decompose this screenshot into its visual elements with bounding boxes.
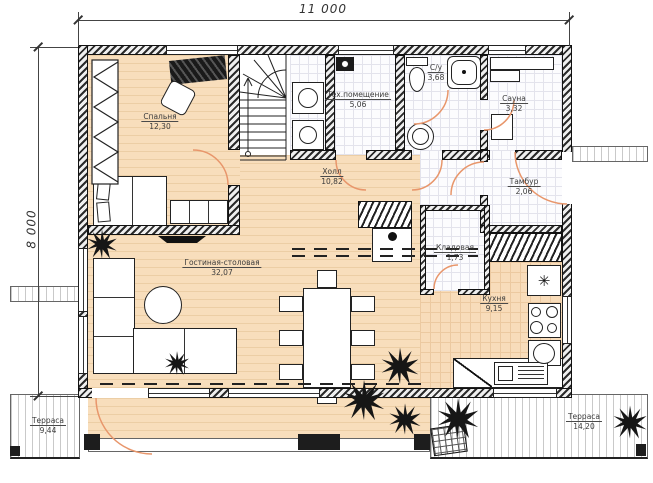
porch-post (298, 434, 340, 450)
wall-bedroom-bottom (88, 225, 240, 235)
kitchen-sink-bowl-icon (533, 343, 555, 364)
sofa-arm-vertical (93, 258, 135, 374)
oven-door-icon (498, 366, 513, 381)
eaves-right (572, 146, 648, 162)
hall-wardrobe (358, 201, 412, 228)
dining-chair (351, 330, 375, 346)
window-bottom-dining (228, 388, 320, 398)
wall-bath-sauna-a (480, 55, 488, 100)
terrace-post (636, 444, 646, 456)
window-top-bedroom (166, 45, 238, 55)
tambur-wardrobe (488, 233, 562, 262)
door-opening-porch (92, 388, 148, 398)
wall-sauna-bottom (515, 150, 562, 160)
oven-vents-icon (518, 366, 544, 381)
porch-step (88, 438, 430, 452)
wall-storage-top (420, 205, 490, 211)
dining-chair (279, 330, 303, 346)
corner-cabinet-diagonal (454, 359, 492, 387)
fridge-snowflake-icon: ✳ (538, 272, 551, 290)
window-top-tech (338, 45, 394, 55)
wall-bath-sauna-b (480, 130, 488, 150)
tech-sink-bowl-icon (341, 60, 349, 68)
bath-sink-bowl-icon (412, 128, 429, 145)
wall-tambur-left-a (480, 150, 488, 162)
room-label-terrace-right: Терраса 14,20 (566, 412, 602, 432)
dining-table (303, 288, 351, 388)
window-left-living-1 (78, 248, 88, 312)
dimension-width-label: 11 000 (299, 2, 347, 16)
wall-storage-bottom-a (420, 289, 434, 295)
coffee-table (144, 286, 182, 324)
stove-burner-icon (546, 306, 558, 318)
boiler-dial-icon (298, 88, 318, 108)
wall-tambur-bottom (480, 225, 562, 233)
sauna-stool (491, 114, 513, 140)
dining-chair (279, 364, 303, 380)
room-label-techroom: Тех.помещение 5,06 (325, 90, 391, 110)
window-left-living-2 (78, 316, 88, 374)
wall-storage-right (484, 205, 490, 295)
stove-burner-icon (547, 323, 557, 333)
room-label-kitchen: Кухня 9,15 (480, 294, 508, 314)
bed-pillow (96, 179, 111, 200)
dresser (170, 200, 228, 224)
wall-bedroom-right-a (228, 55, 240, 150)
window-bottom-kitchen (493, 388, 557, 398)
fridge: ✳ (527, 265, 561, 296)
dining-chair (279, 296, 303, 312)
bed-pillow (96, 201, 111, 222)
dining-chair (351, 364, 375, 380)
porch-floor (88, 398, 430, 438)
stove-burner-icon (531, 307, 541, 317)
sauna-bench (490, 57, 554, 70)
door-opening-entrance (562, 152, 572, 204)
wall-hall-top-b (366, 150, 412, 160)
cabinet-knob-icon (388, 232, 397, 241)
terrace-post (10, 446, 20, 456)
basket (430, 424, 468, 456)
heater-dial-icon (299, 126, 317, 144)
sofa-arm-horizontal (133, 328, 237, 374)
dimension-height-label: 8 000 (25, 209, 39, 248)
shower-drain-icon (462, 70, 466, 74)
room-label-storage: Кладовая 1,73 (434, 243, 476, 263)
eaves-left (10, 286, 80, 302)
window-bottom-living (148, 388, 210, 398)
room-label-living-dining: Гостиная-столовая 32,07 (182, 258, 261, 278)
wall-tech-bath (395, 55, 405, 150)
porch-post (84, 434, 100, 450)
wall-exterior-right (562, 45, 572, 398)
stove-burner-icon (530, 321, 543, 334)
floor-plan: 11 000 8 000 (0, 0, 653, 483)
wall-hall-top-a (290, 150, 336, 160)
room-label-bathroom: С/у 3,68 (428, 63, 445, 83)
room-label-terrace-left: Терраса 9,44 (30, 416, 66, 436)
room-label-hall: Холл 10,82 (320, 167, 343, 187)
toilet-tank (406, 57, 428, 66)
dining-chair (351, 296, 375, 312)
porch-post (414, 434, 430, 450)
dining-chair (317, 270, 337, 288)
window-top-sauna (488, 45, 526, 55)
room-label-bedroom: Спальня 12,30 (141, 112, 178, 132)
room-label-sauna: Сауна 3,32 (500, 94, 528, 114)
wall-storage-left (420, 205, 426, 295)
sauna-bench-low (490, 70, 520, 82)
window-right-kitchen (562, 296, 572, 344)
room-label-tambur: Тамбур 2,06 (508, 177, 541, 197)
dimension-width-line (78, 20, 570, 21)
